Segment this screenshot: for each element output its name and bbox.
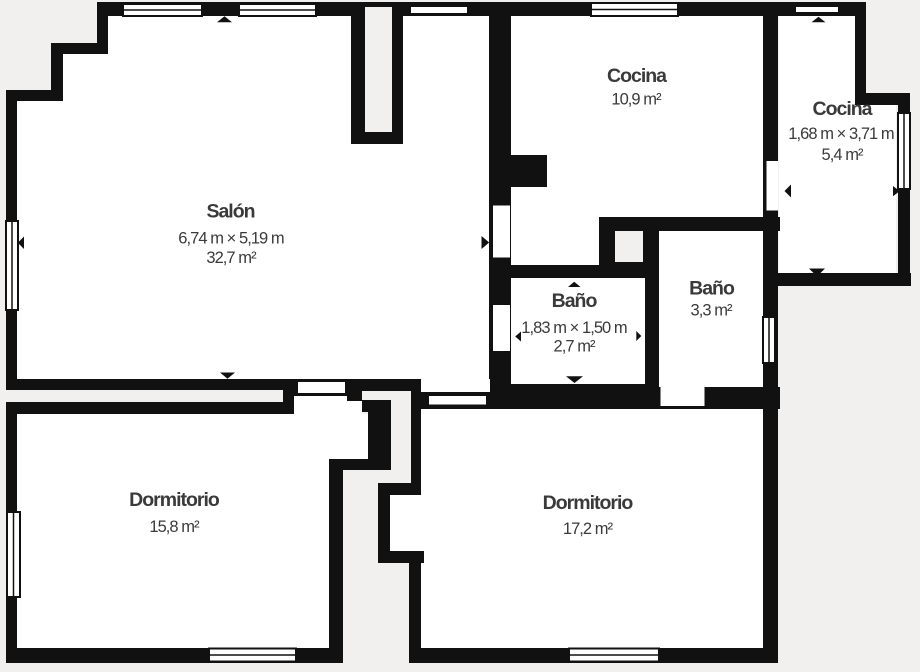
svg-text:3,3 m²: 3,3 m² <box>690 302 733 320</box>
svg-text:Salón: Salón <box>206 201 254 223</box>
svg-text:15,8 m²: 15,8 m² <box>149 518 200 536</box>
svg-text:Baño: Baño <box>552 290 598 312</box>
svg-text:2,7 m²: 2,7 m² <box>553 338 596 356</box>
svg-text:Cocina: Cocina <box>812 98 872 120</box>
svg-text:Baño: Baño <box>689 278 735 300</box>
svg-text:Dormitorio: Dormitorio <box>129 489 220 511</box>
svg-text:Cocina: Cocina <box>607 65 667 87</box>
svg-text:32,7 m²: 32,7 m² <box>206 249 257 267</box>
svg-text:1,68 m × 3,71 m: 1,68 m × 3,71 m <box>788 125 894 143</box>
svg-text:6,74 m × 5,19 m: 6,74 m × 5,19 m <box>178 230 284 248</box>
svg-text:10,9 m²: 10,9 m² <box>611 91 662 109</box>
svg-text:Dormitorio: Dormitorio <box>543 492 634 514</box>
svg-text:1,83 m × 1,50 m: 1,83 m × 1,50 m <box>521 319 627 337</box>
svg-text:5,4 m²: 5,4 m² <box>821 146 864 164</box>
svg-text:17,2 m²: 17,2 m² <box>563 520 614 538</box>
